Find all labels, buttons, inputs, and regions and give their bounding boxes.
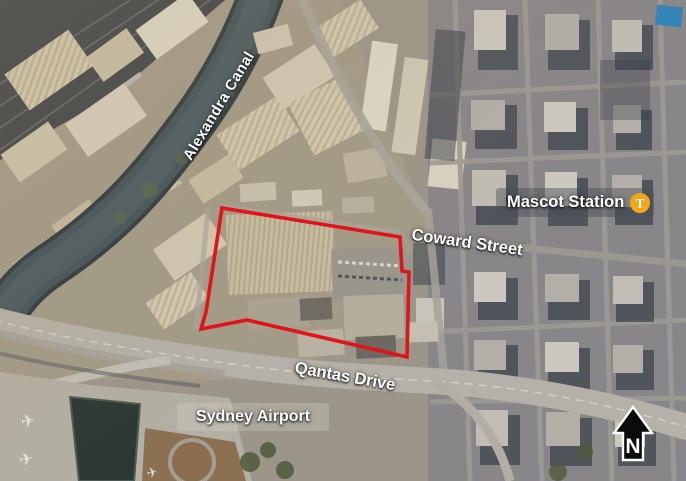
label-mascot-station: Mascot Station T	[496, 188, 654, 217]
aerial-map-figure: ✈ ✈ ✈ Alexandra Canal Mascot Station T C…	[0, 0, 686, 481]
label-sydney-airport: Sydney Airport	[177, 403, 329, 431]
satellite-imagery: ✈ ✈ ✈	[0, 0, 686, 481]
sydney-airport-text: Sydney Airport	[196, 408, 310, 426]
north-label: N	[625, 435, 640, 458]
train-station-icon: T	[629, 192, 651, 214]
north-arrow-icon: N	[612, 404, 654, 464]
svg-text:T: T	[636, 196, 645, 210]
mascot-station-text: Mascot Station	[507, 193, 624, 212]
